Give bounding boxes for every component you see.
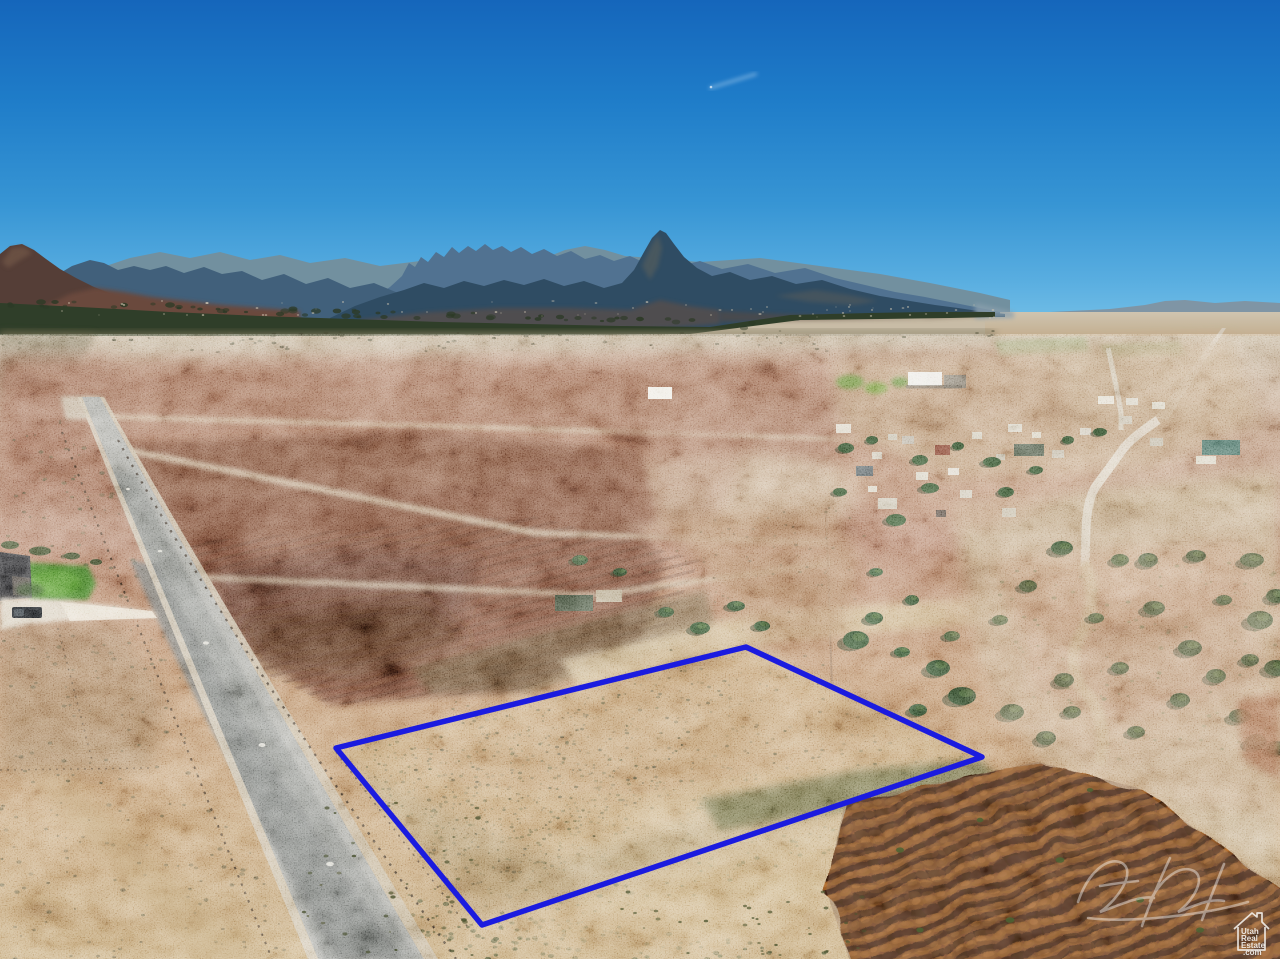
- svg-text:.com: .com: [1243, 948, 1262, 957]
